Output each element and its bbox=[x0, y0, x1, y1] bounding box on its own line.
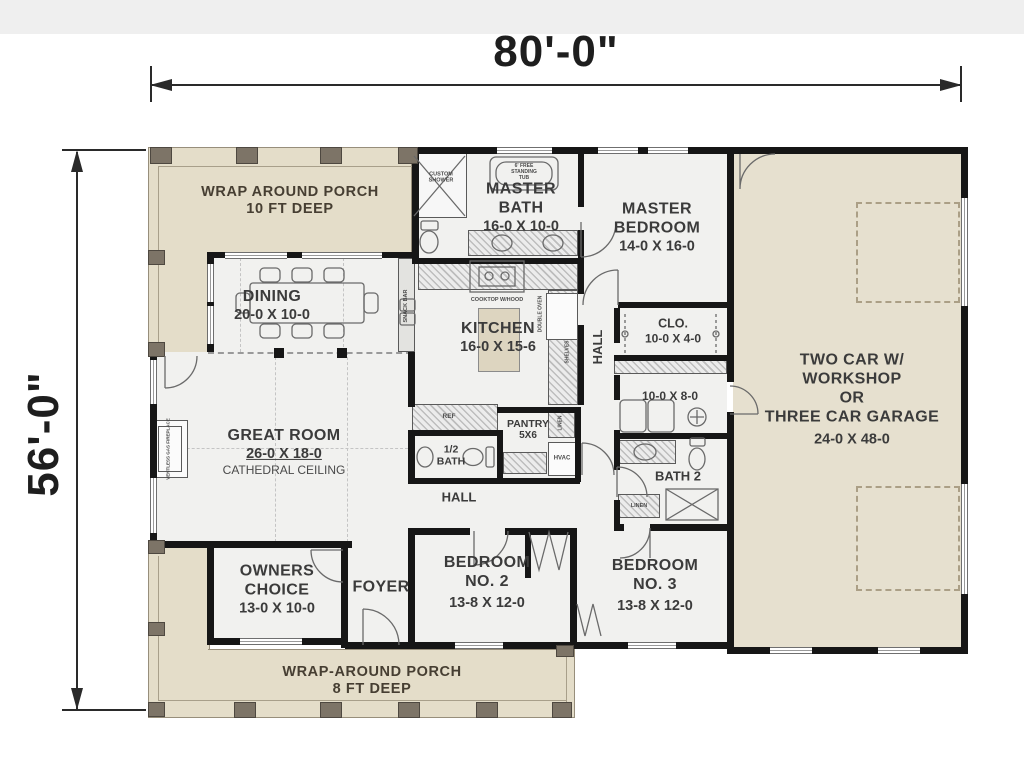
fixture-label-tub: 6' FREESTANDINGTUB bbox=[511, 164, 537, 182]
fixture-label-shelves: SHELVES bbox=[565, 341, 571, 364]
witness-line bbox=[62, 709, 146, 711]
vanity-sink bbox=[634, 444, 656, 460]
arrowhead-left bbox=[150, 79, 172, 91]
door-bedroom3 bbox=[620, 528, 650, 558]
height-dimension-line bbox=[76, 152, 78, 710]
washer bbox=[620, 400, 646, 432]
fixture-label-ref: REF bbox=[443, 413, 456, 421]
room-label-hall-upper: HALL bbox=[591, 330, 605, 365]
dining-chair bbox=[260, 268, 280, 282]
halfbath-sink bbox=[417, 447, 433, 467]
door-owners-choice bbox=[311, 550, 343, 582]
room-label-great-room: GREAT ROOM 26-0 X 18-0 CATHEDRAL CEILING bbox=[223, 427, 346, 477]
room-label-laundry: 10-0 X 8-0 bbox=[642, 389, 698, 403]
door-bath2 bbox=[617, 467, 647, 497]
fixture-label-cooktop: COOKTOP W/HOOD bbox=[471, 297, 523, 303]
room-label-bath2: BATH 2 bbox=[655, 468, 701, 483]
toilet-bowl bbox=[689, 448, 705, 470]
dining-chair bbox=[292, 268, 312, 282]
door-garage-entry bbox=[740, 154, 775, 189]
room-label-closet: CLO. 10-0 X 4-0 bbox=[645, 317, 701, 346]
burner bbox=[501, 272, 509, 280]
room-label-pantry: PANTRY 5X6 bbox=[507, 418, 549, 442]
height-dimension-text: 56'-0" bbox=[20, 371, 68, 496]
vanity-sink bbox=[492, 235, 512, 251]
fixture-label-double-oven: DOUBLE OVEN bbox=[538, 296, 544, 333]
dining-chair bbox=[364, 293, 378, 313]
room-label-porch-bottom: WRAP-AROUND PORCH8 FT DEEP bbox=[282, 664, 461, 698]
vanity-sink bbox=[543, 235, 563, 251]
width-dimension-text: 80'-0" bbox=[493, 26, 618, 78]
bath2-tub-x bbox=[666, 489, 718, 520]
laundry-sink-cross bbox=[690, 410, 704, 424]
fixture-label-linen-bath2: LINEN bbox=[631, 503, 648, 509]
room-label-foyer: FOYER bbox=[352, 579, 409, 598]
room-label-hall-lower: HALL bbox=[442, 489, 477, 504]
dining-chair bbox=[324, 268, 344, 282]
arrowhead-right bbox=[940, 79, 962, 91]
door-master-bath bbox=[581, 222, 616, 257]
witness-line bbox=[150, 66, 152, 102]
door-front-entry bbox=[363, 609, 399, 645]
door-master-bedroom bbox=[583, 270, 618, 305]
toilet-bowl bbox=[420, 231, 438, 253]
fixture-label-linen-hall: LINEN bbox=[558, 416, 564, 431]
room-label-owners-choice: OWNERS CHOICE 13-0 X 10-0 bbox=[239, 563, 315, 618]
room-label-master-bedroom: MASTER BEDROOM 14-0 X 16-0 bbox=[614, 201, 700, 256]
arrowhead-up bbox=[71, 150, 83, 172]
door-laundry-garage bbox=[730, 386, 758, 414]
room-label-kitchen: KITCHEN 16-0 X 15-6 bbox=[460, 320, 536, 356]
toilet-tank bbox=[421, 221, 438, 230]
dining-chair bbox=[260, 324, 280, 338]
fixture-label-hvac: HVAC bbox=[554, 455, 571, 462]
dining-chair bbox=[324, 324, 344, 338]
toilet-tank bbox=[486, 447, 494, 467]
toilet-tank bbox=[690, 438, 705, 446]
shower-glass-lines bbox=[414, 156, 465, 216]
door-porch-great-room bbox=[165, 356, 197, 388]
fixture-label-custom-shower: CUSTOMSHOWER bbox=[429, 172, 454, 185]
room-label-master-bath: MASTER BATH 16-0 X 10-0 bbox=[483, 181, 559, 236]
room-label-bedroom2: BEDROOM NO. 2 13-8 X 12-0 bbox=[444, 554, 530, 612]
door-hvac-hall bbox=[582, 443, 614, 475]
room-label-porch-top: WRAP AROUND PORCH10 FT DEEP bbox=[201, 184, 379, 218]
bifold-doors bbox=[577, 604, 601, 636]
room-label-garage: TWO CAR W/ WORKSHOP OR THREE CAR GARAGE … bbox=[765, 352, 939, 449]
toilet-bowl bbox=[463, 449, 483, 466]
fixture-label-fireplace: VENTLESS GAS FIREPLACE bbox=[167, 418, 172, 480]
burner bbox=[485, 272, 493, 280]
bifold-doors bbox=[529, 532, 568, 570]
dryer bbox=[648, 400, 674, 432]
room-label-bedroom3: BEDROOM NO. 3 13-8 X 12-0 bbox=[612, 557, 698, 615]
arrowhead-down bbox=[71, 688, 83, 710]
witness-line bbox=[62, 149, 146, 151]
width-dimension-line bbox=[152, 84, 962, 86]
dining-chair bbox=[292, 324, 312, 338]
floor-plan: 80'-0" 56'-0" WRAP AROUND PORCH10 FT DEE… bbox=[0, 0, 1024, 772]
fixture-label-snack-bar: SNACK BAR bbox=[403, 290, 409, 323]
room-label-half-bath: 1/2 BATH bbox=[437, 444, 465, 469]
witness-line bbox=[960, 66, 962, 102]
room-label-dining: DINING 20-0 X 10-0 bbox=[234, 288, 310, 324]
cooktop bbox=[470, 261, 524, 292]
